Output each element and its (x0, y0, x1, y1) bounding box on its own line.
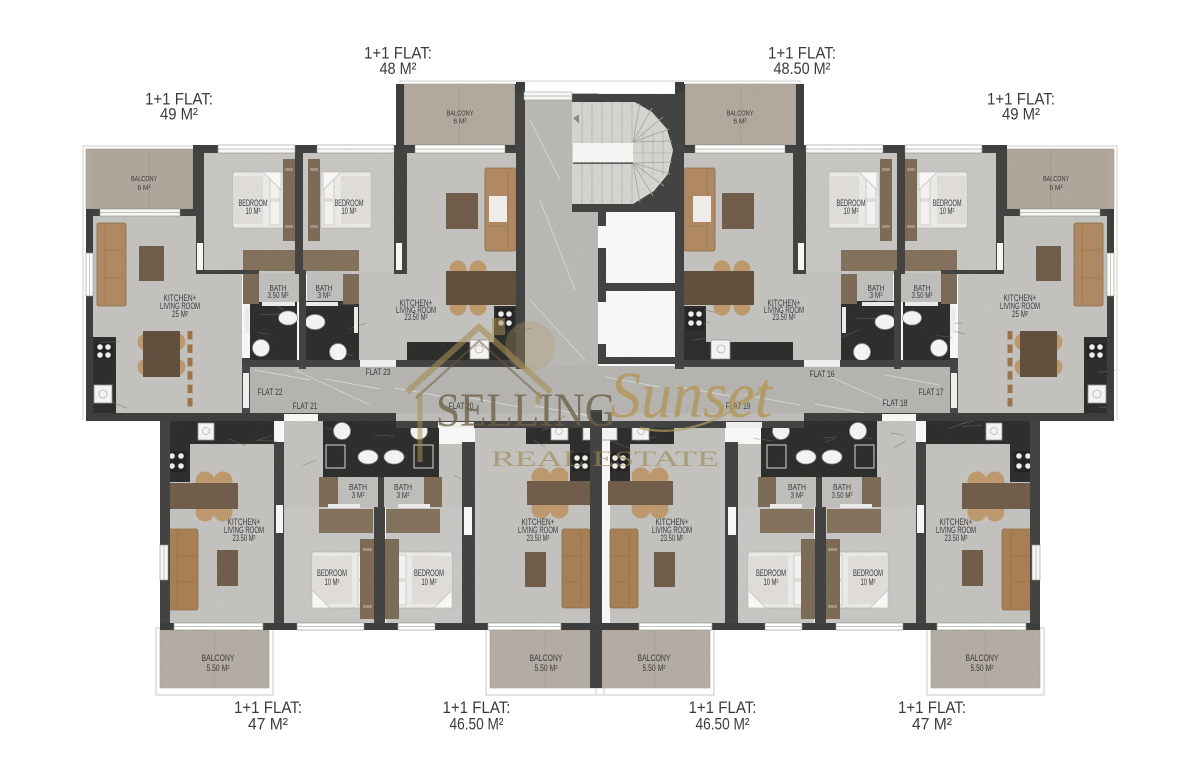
svg-text:3 M²: 3 M² (318, 290, 331, 300)
svg-text:5.50 M²: 5.50 M² (535, 663, 558, 673)
svg-text:47 M²: 47 M² (248, 716, 288, 734)
svg-text:1+1 FLAT:: 1+1 FLAT: (443, 699, 511, 717)
svg-text:10 M²: 10 M² (325, 577, 340, 587)
svg-text:23.50 M²: 23.50 M² (945, 533, 968, 543)
svg-text:6 M²: 6 M² (1050, 183, 1063, 192)
svg-text:FLAT 17: FLAT 17 (919, 387, 944, 397)
svg-text:47 M²: 47 M² (912, 716, 952, 734)
svg-text:49 M²: 49 M² (160, 106, 198, 124)
svg-text:1+1 FLAT:: 1+1 FLAT: (898, 699, 966, 717)
svg-text:Sunset: Sunset (610, 359, 774, 432)
svg-text:BALCONY: BALCONY (638, 653, 671, 663)
svg-text:10 M²: 10 M² (764, 577, 779, 587)
svg-text:48.50 M²: 48.50 M² (774, 60, 831, 78)
svg-text:BALCONY: BALCONY (966, 653, 999, 663)
svg-text:REAL ESTATE: REAL ESTATE (491, 446, 719, 471)
svg-text:BALCONY: BALCONY (131, 174, 157, 183)
svg-text:10 M²: 10 M² (940, 206, 955, 216)
svg-text:FLAT 22: FLAT 22 (258, 387, 283, 397)
svg-text:SELLING: SELLING (436, 384, 616, 437)
svg-text:BALCONY: BALCONY (1043, 174, 1069, 183)
svg-text:FLAT 16: FLAT 16 (810, 369, 835, 379)
svg-text:23.50 M²: 23.50 M² (527, 533, 550, 543)
svg-text:1+1 FLAT:: 1+1 FLAT: (689, 699, 757, 717)
svg-text:23.50 M²: 23.50 M² (773, 312, 796, 322)
svg-text:10 M²: 10 M² (844, 206, 859, 216)
svg-text:6 M²: 6 M² (454, 117, 467, 126)
svg-text:49 M²: 49 M² (1002, 106, 1040, 124)
svg-text:48 M²: 48 M² (380, 60, 417, 78)
svg-text:10 M²: 10 M² (246, 206, 261, 216)
svg-text:1+1 FLAT:: 1+1 FLAT: (234, 699, 302, 717)
svg-text:25 M²: 25 M² (172, 309, 188, 319)
svg-text:3 M²: 3 M² (352, 490, 365, 500)
svg-text:23.50 M²: 23.50 M² (233, 533, 256, 543)
svg-text:23.50 M²: 23.50 M² (661, 533, 684, 543)
svg-text:46.50 M²: 46.50 M² (450, 716, 504, 734)
svg-text:10 M²: 10 M² (422, 577, 437, 587)
svg-text:FLAT 23: FLAT 23 (366, 367, 391, 377)
svg-text:5.50 M²: 5.50 M² (971, 663, 994, 673)
svg-text:BALCONY: BALCONY (530, 653, 563, 663)
svg-text:23.50 M²: 23.50 M² (405, 312, 428, 322)
svg-text:3 M²: 3 M² (870, 290, 883, 300)
svg-text:5.50 M²: 5.50 M² (207, 663, 230, 673)
svg-text:FLAT 18: FLAT 18 (883, 398, 908, 408)
svg-text:6 M²: 6 M² (138, 183, 151, 192)
svg-text:25 M²: 25 M² (1012, 309, 1028, 319)
svg-text:3 M²: 3 M² (397, 490, 410, 500)
svg-text:10 M²: 10 M² (342, 206, 357, 216)
svg-text:FLAT 21: FLAT 21 (293, 401, 318, 411)
svg-text:BALCONY: BALCONY (202, 653, 235, 663)
svg-text:3 M²: 3 M² (791, 490, 804, 500)
svg-text:3.50 M²: 3.50 M² (912, 290, 933, 300)
svg-text:6 M²: 6 M² (734, 117, 747, 126)
svg-text:5.50 M²: 5.50 M² (643, 663, 666, 673)
svg-text:46.50 M²: 46.50 M² (696, 716, 750, 734)
svg-text:10 M²: 10 M² (861, 577, 876, 587)
svg-text:3.50 M²: 3.50 M² (268, 290, 289, 300)
svg-text:3.50 M²: 3.50 M² (832, 490, 853, 500)
